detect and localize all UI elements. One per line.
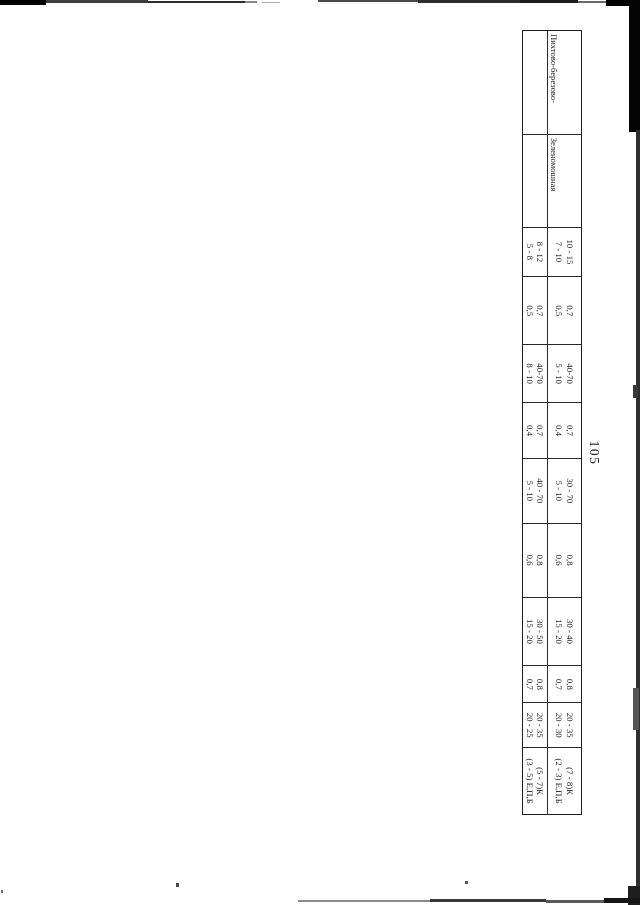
cell-line: (7 - 8)К [565, 767, 575, 795]
cell-line: 20 - 35 [535, 713, 545, 738]
cell-line: 0,4 [554, 425, 564, 436]
cell-line: 0,8 [565, 555, 575, 566]
cell-line: 0,4 [525, 425, 535, 436]
column-value-6: 0,8 0,6 0,8 0,6 [523, 524, 581, 598]
value-cell: 0,7 0,4 [523, 403, 547, 458]
cell-line: 0,7 [535, 305, 545, 316]
forest-type-cell: Березово-осиновые с пихтой и кедром [523, 31, 547, 134]
cell-line: (3 - 5) Е,П,Б [525, 758, 535, 803]
cell-line: 0,7 [525, 679, 535, 690]
cell-line: 30 - 50 [535, 619, 545, 644]
value-cell: 20 - 35 20 - 30 [547, 703, 581, 747]
cell-line: 5 - 10 [554, 481, 564, 502]
column-value-8: 0,8 0,7 0,8 0,7 [523, 666, 581, 703]
column-value-1: 10 - 15 7 - 10 8 - 12 5 - 8 [523, 228, 581, 278]
cell-line: Березово-осиновые с [523, 34, 525, 134]
cell-line: 15 - 20 [554, 619, 564, 644]
value-cell: 0,8 0,6 [547, 524, 581, 597]
value-cell: 40 - 70 5 - 10 [523, 459, 547, 523]
cell-line: 0,8 [535, 555, 545, 566]
value-cell: 30 - 50 15 - 20 [523, 598, 547, 666]
cell-line: 0,6 [525, 555, 535, 566]
column-value-2: 0,7 0,5 0,7 0,5 [523, 277, 581, 345]
value-cell: 0,8 0,7 [547, 666, 581, 702]
cell-line: 15 - 20 [525, 619, 535, 644]
value-cell: 0,7 0,5 [523, 277, 547, 344]
cell-line: Пихтово-березово- [549, 34, 559, 134]
value-cell: 0,8 0,7 [523, 666, 547, 702]
value-cell: 8 - 12 5 - 8 [523, 228, 547, 277]
scanned-page: 105 Пихтово-березово- осиновые (елово-пи… [0, 0, 640, 905]
composition-cell: (7 - 8)К (2 - 3) Е,П,Б [547, 748, 581, 814]
cell-line: 20 - 30 [554, 713, 564, 738]
cell-line: 5 - 8 [525, 244, 535, 260]
cell-line: 8 - 10 [525, 363, 535, 384]
cell-line: 0,7 [565, 425, 575, 436]
cell-line: 0,5 [554, 305, 564, 316]
cell-line: 0,6 [554, 555, 564, 566]
value-cell: 0,7 0,5 [547, 277, 581, 344]
cell-line: 5 - 10 [554, 363, 564, 384]
column-value-4: 0,7 0,4 0,7 0,4 [523, 403, 581, 459]
site-class-cell: Зеленомошная (II - IV) [547, 135, 581, 227]
cell-line: 0,8 [535, 679, 545, 690]
cell-line: 30 - 70 [565, 478, 575, 503]
rotated-content: 105 Пихтово-березово- осиновые (елово-пи… [0, 0, 640, 905]
value-cell: 40-70 5 - 10 [547, 345, 581, 402]
column-value-9: 20 - 35 20 - 30 20 - 35 20 - 25 [523, 703, 581, 748]
cell-line: (2 - 3) Е,П,Б [554, 758, 564, 803]
value-cell: 30 - 70 5 - 10 [547, 459, 581, 523]
cell-line: 30 - 40 [565, 619, 575, 644]
cell-line: 20 - 35 [565, 713, 575, 738]
cell-line: 5 - 10 [525, 481, 535, 502]
cell-line: 20 - 25 [525, 713, 535, 738]
value-cell: 0,7 0,4 [547, 403, 581, 458]
value-cell: 30 - 40 15 - 20 [547, 598, 581, 666]
cell-line: 8 - 12 [535, 242, 545, 263]
column-value-3: 40-70 5 - 10 40-70 8 - 10 [523, 345, 581, 403]
rotated-table: Пихтово-березово- осиновые (елово-пихто-… [522, 30, 582, 815]
column-value-5: 30 - 70 5 - 10 40 - 70 5 - 10 [523, 459, 581, 524]
value-cell: 40-70 8 - 10 [523, 345, 547, 402]
column-value-7: 30 - 40 15 - 20 30 - 50 15 - 20 [523, 598, 581, 667]
cell-line: 7 - 10 [554, 242, 564, 263]
cell-line: 0,5 [525, 305, 535, 316]
cell-line: 40 - 70 [535, 478, 545, 503]
cell-line: 40-70 [565, 363, 575, 384]
cell-line: Зеленомошная [549, 138, 559, 227]
cell-line: Травяная [523, 138, 525, 227]
cell-line: 0,7 [565, 305, 575, 316]
value-cell: 0,8 0,6 [523, 524, 547, 597]
cell-line: 40-70 [535, 363, 545, 384]
column-site-class: Зеленомошная (II - IV) Травяная (I - III… [523, 135, 581, 228]
column-forest-type: Пихтово-березово- осиновые (елово-пихто-… [523, 31, 581, 135]
cell-line: 10 - 15 [565, 239, 575, 264]
column-composition: (7 - 8)К (2 - 3) Е,П,Б (5 - 7)К (3 - 5) … [523, 748, 581, 814]
composition-cell: (5 - 7)К (3 - 5) Е,П,Б [523, 748, 547, 814]
value-cell: 10 - 15 7 - 10 [547, 228, 581, 277]
value-cell: 20 - 35 20 - 25 [523, 703, 547, 747]
forest-type-cell: Пихтово-березово- осиновые (елово-пихто-… [547, 31, 581, 134]
page-number: 105 [587, 436, 601, 470]
site-class-cell: Травяная (I - III) [523, 135, 547, 227]
cell-line: (5 - 7)К [535, 767, 545, 795]
cell-line: 0,7 [535, 425, 545, 436]
cell-line: 0,7 [554, 679, 564, 690]
cell-line: 0,8 [565, 679, 575, 690]
